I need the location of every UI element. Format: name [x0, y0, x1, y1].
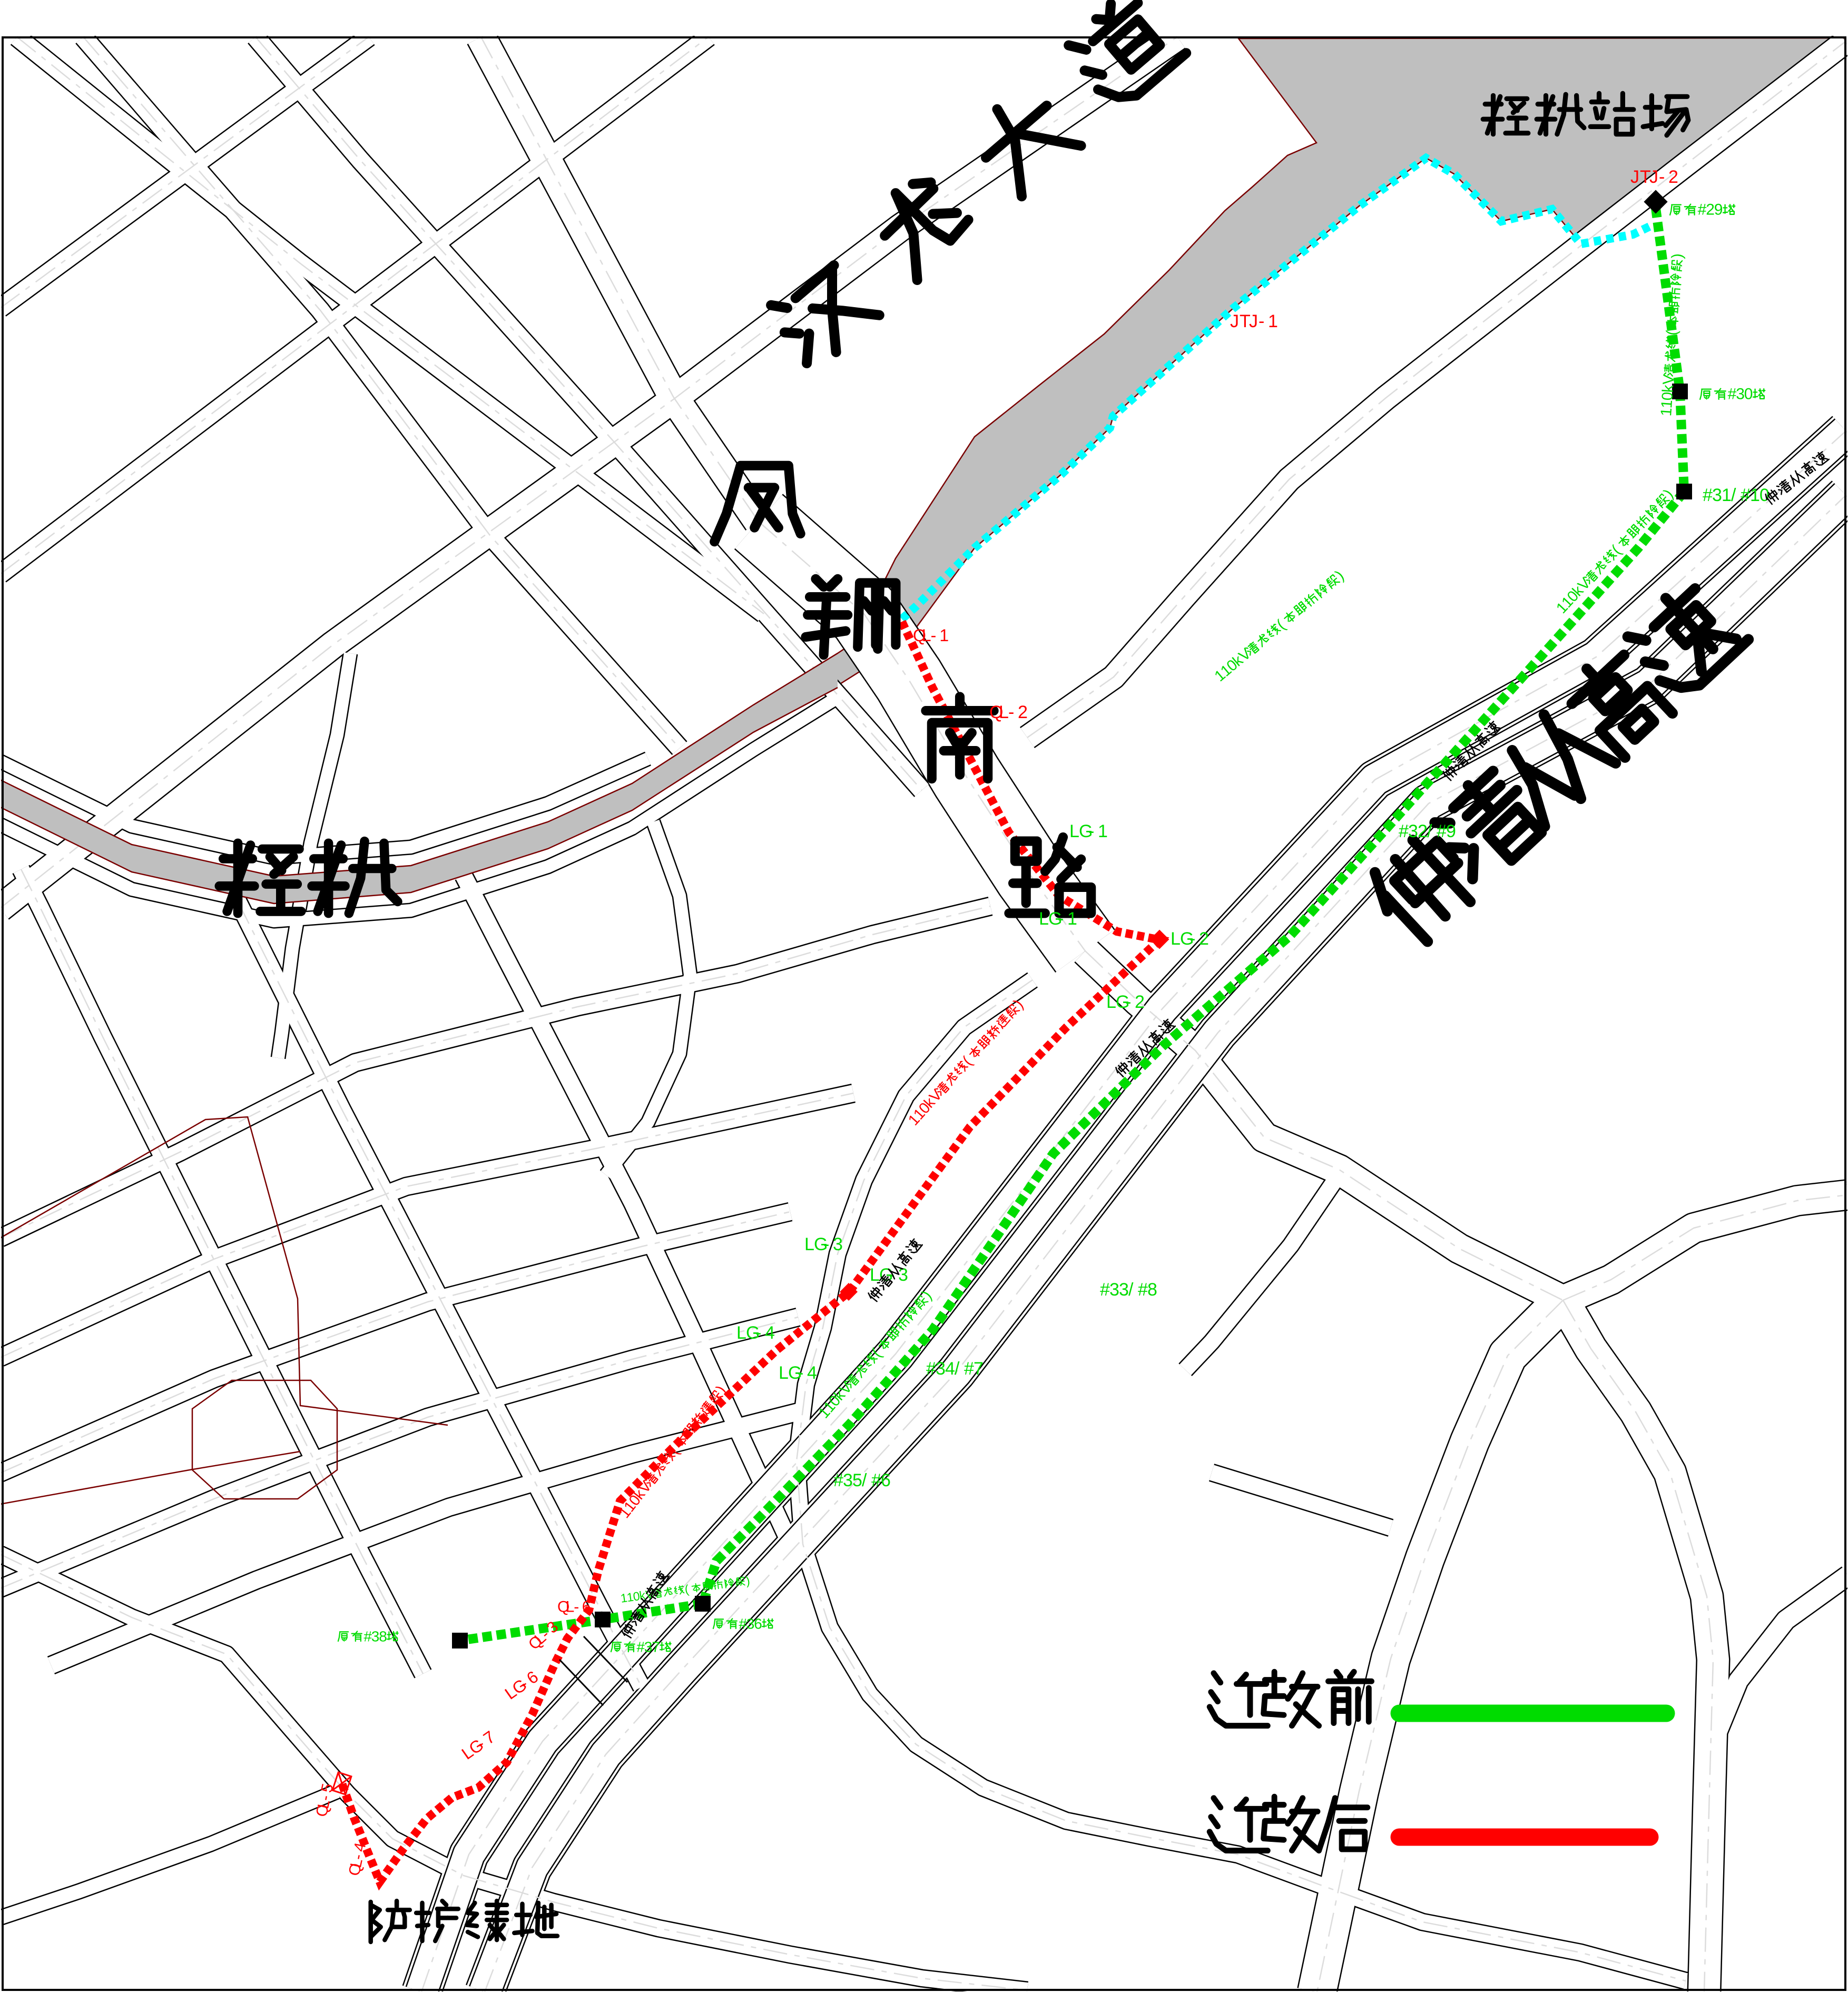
svg-text:J: J [1630, 167, 1639, 187]
svg-text:-: - [798, 1363, 803, 1383]
svg-text:2: 2 [1668, 167, 1678, 187]
svg-text:#: # [964, 1359, 974, 1379]
svg-text:3: 3 [1119, 1280, 1129, 1300]
svg-text:2: 2 [1199, 929, 1209, 949]
svg-text:L: L [779, 1363, 789, 1383]
svg-text:-: - [1058, 909, 1064, 929]
svg-text:J: J [1249, 311, 1258, 331]
svg-text:1: 1 [1750, 485, 1760, 505]
svg-text:4: 4 [765, 1323, 775, 1343]
svg-text:8: 8 [379, 1628, 387, 1645]
svg-text:L: L [922, 626, 931, 645]
svg-text:L: L [736, 1323, 746, 1343]
svg-text:#: # [833, 1470, 843, 1490]
svg-text:-: - [1259, 311, 1264, 331]
svg-text:3: 3 [746, 1616, 755, 1632]
svg-text:#: # [871, 1470, 881, 1490]
svg-text:2: 2 [1135, 992, 1145, 1012]
svg-text:L: L [999, 702, 1009, 722]
svg-text:J: J [1230, 311, 1239, 331]
svg-text:1: 1 [939, 626, 949, 645]
svg-text:V: V [1660, 374, 1677, 385]
svg-text:7: 7 [974, 1359, 984, 1379]
svg-text:3: 3 [371, 1628, 380, 1645]
svg-text:3: 3 [644, 1639, 653, 1655]
svg-text:#: # [1703, 485, 1713, 505]
svg-text:#: # [1138, 1280, 1148, 1300]
svg-text:/: / [1731, 485, 1736, 505]
svg-text:L: L [1171, 929, 1181, 949]
svg-text:1: 1 [1268, 311, 1278, 331]
svg-text:4: 4 [807, 1363, 817, 1383]
svg-text:#: # [1698, 201, 1707, 219]
svg-text:/: / [955, 1359, 960, 1379]
svg-text:7: 7 [652, 1639, 660, 1655]
svg-text:9: 9 [1714, 201, 1723, 219]
svg-text:2: 2 [1018, 702, 1028, 722]
svg-text:3: 3 [843, 1470, 853, 1490]
svg-text:L: L [566, 1598, 575, 1616]
svg-text:#: # [1728, 386, 1737, 403]
svg-text:L: L [804, 1234, 814, 1254]
svg-text:L: L [870, 1265, 880, 1285]
svg-text:L: L [1106, 992, 1116, 1012]
svg-text:4: 4 [945, 1359, 955, 1379]
svg-text:3: 3 [833, 1234, 843, 1254]
svg-text:3: 3 [936, 1359, 946, 1379]
svg-text:J: J [1649, 167, 1658, 187]
svg-text:/: / [1128, 1280, 1134, 1300]
svg-text:-: - [1659, 167, 1665, 187]
svg-text:3: 3 [1109, 1280, 1119, 1300]
svg-text:-: - [1008, 702, 1014, 722]
svg-text:1: 1 [1067, 909, 1077, 929]
svg-text:3: 3 [1712, 485, 1722, 505]
svg-text:0: 0 [1744, 386, 1753, 403]
svg-text:6: 6 [754, 1616, 762, 1632]
svg-text:-: - [574, 1598, 579, 1616]
svg-text:9: 9 [1446, 821, 1456, 841]
svg-text:#: # [1741, 485, 1751, 505]
svg-text:#: # [1437, 821, 1447, 841]
svg-text:-: - [755, 1323, 761, 1343]
svg-text:8: 8 [1147, 1280, 1157, 1300]
svg-text:#: # [1399, 821, 1409, 841]
svg-text:6: 6 [582, 1598, 591, 1616]
svg-text:6: 6 [881, 1470, 891, 1490]
svg-text:#: # [1100, 1280, 1110, 1300]
svg-text:L: L [1039, 909, 1049, 929]
svg-text:3: 3 [1408, 821, 1418, 841]
svg-text:1: 1 [1722, 485, 1732, 505]
svg-text:#: # [926, 1359, 936, 1379]
svg-text:-: - [931, 626, 937, 645]
svg-text:-: - [1125, 992, 1131, 1012]
svg-text:2: 2 [1418, 821, 1428, 841]
svg-text:L: L [1069, 821, 1079, 841]
svg-text:-: - [1190, 929, 1195, 949]
svg-text:-: - [1088, 821, 1094, 841]
svg-text:/: / [862, 1470, 867, 1490]
svg-text:3: 3 [1736, 386, 1745, 403]
svg-text:5: 5 [852, 1470, 862, 1490]
svg-text:/: / [1427, 821, 1432, 841]
svg-text:-: - [823, 1234, 829, 1254]
svg-text:2: 2 [1706, 201, 1715, 219]
svg-text:1: 1 [1098, 821, 1108, 841]
